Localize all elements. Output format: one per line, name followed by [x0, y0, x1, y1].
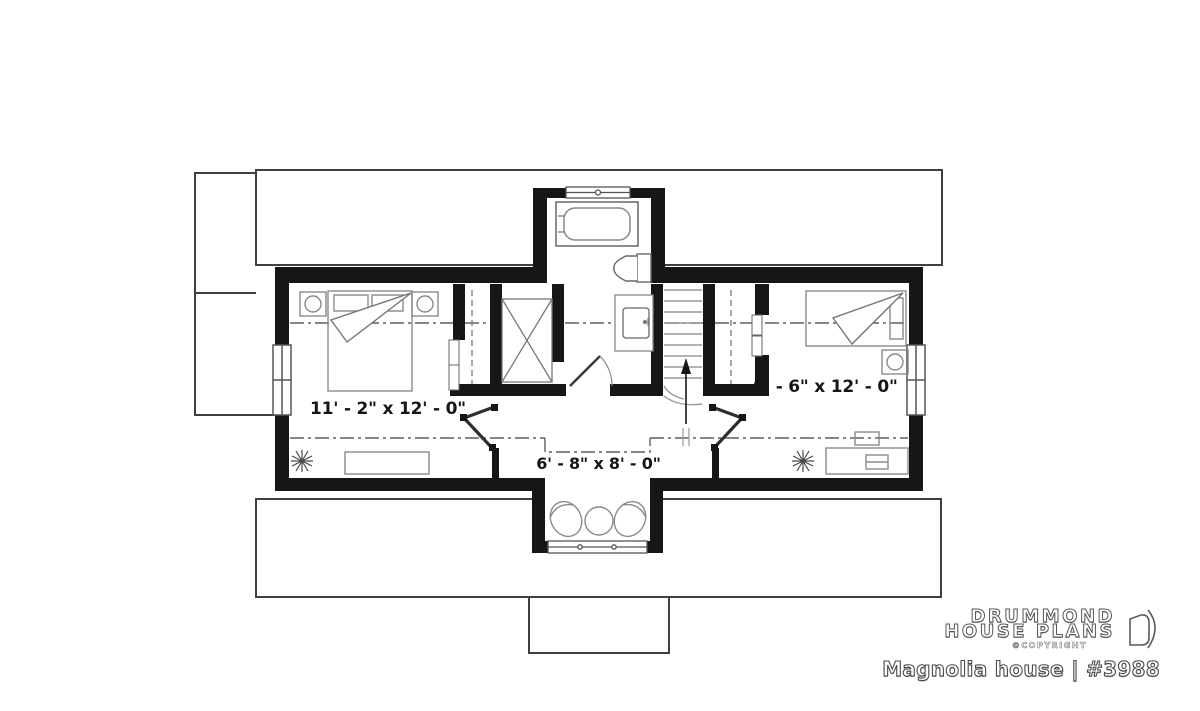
window-left-wall-icon [273, 345, 291, 415]
sitting-area-dimension-label: 6' - 8" x 8' - 0" [528, 454, 669, 473]
round-table-icon [585, 507, 613, 535]
left-bedroom-dimension-label: 11' - 2" x 12' - 0" [310, 399, 455, 419]
bathtub-icon [556, 202, 638, 246]
staircase [664, 290, 702, 405]
window-sitting-dormer-icon [548, 541, 647, 553]
dormer-floor-masks [545, 198, 651, 552]
plant-icon [792, 450, 814, 472]
drummond-logo: DRUMMOND HOUSE PLANS ©COPYRIGHT [944, 609, 1160, 650]
lamp-icon [887, 354, 903, 370]
closet-door-icon [449, 365, 459, 390]
single-bed-icon [806, 291, 906, 346]
window-right-wall-icon [907, 345, 925, 415]
vanity-sink-icon [615, 295, 653, 351]
left-bedroom [300, 291, 438, 474]
bathroom-door-icon [570, 356, 612, 386]
closet-door-icon [449, 340, 459, 365]
bathroom [556, 202, 653, 386]
lamp-icon [417, 296, 433, 312]
floor-plan-page: 11' - 2" x 12' - 0" 6' - 8" x 8' - 0" 9'… [0, 0, 1200, 711]
roof-porch [529, 597, 669, 653]
closet-door-icon [752, 336, 762, 356]
shower-icon [502, 299, 552, 382]
hall-dormer-cheek-walls [464, 407, 742, 448]
right-bedroom-dimension-label: 9' - 6" x 12' - 0" [753, 377, 898, 397]
logo-copyright: ©COPYRIGHT [1012, 641, 1087, 650]
logo-wordmark: DRUMMOND HOUSE PLANS ©COPYRIGHT [944, 609, 1115, 650]
window-bath-dormer-icon [566, 187, 630, 198]
plan-title: Magnolia house | #3988 [882, 657, 1160, 681]
floor-plan [0, 0, 1200, 711]
bench-icon [345, 452, 429, 474]
drummond-door-logo-icon [1122, 609, 1160, 649]
stairs-up-arrow-icon [681, 358, 691, 446]
lamp-icon [305, 296, 321, 312]
logo-line-2: HOUSE PLANS [944, 624, 1115, 639]
cheek-wall-caps [460, 404, 746, 451]
closet-door-icon [752, 315, 762, 335]
plant-icon [291, 450, 313, 472]
double-bed-icon [328, 291, 412, 391]
